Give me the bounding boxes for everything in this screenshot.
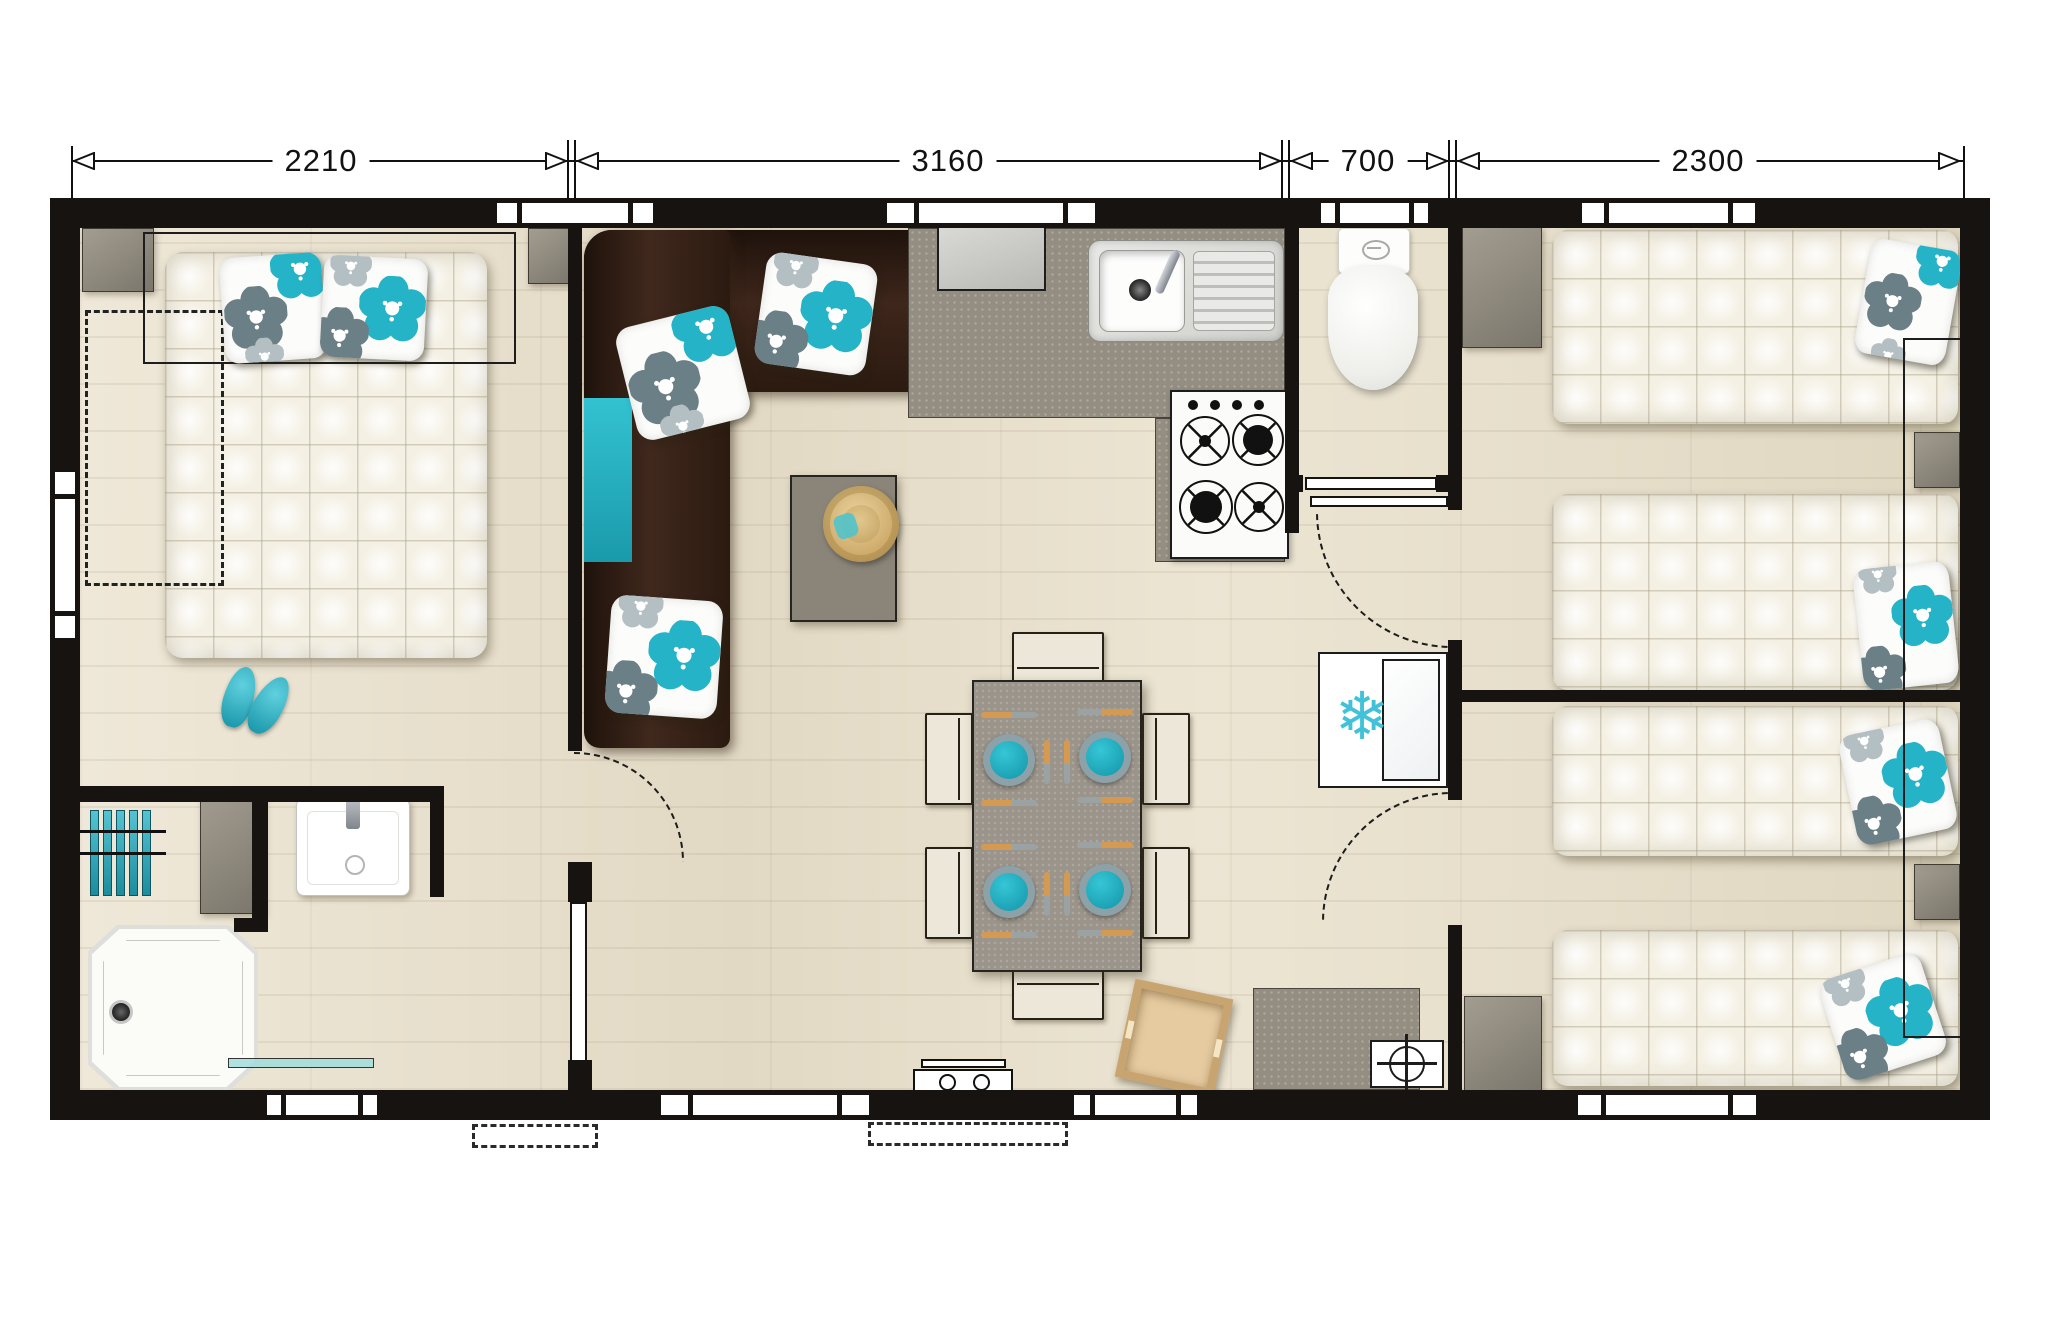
crosshair-line bbox=[1405, 1034, 1408, 1094]
shower-glass-screen bbox=[228, 1058, 374, 1068]
step-roller bbox=[973, 1074, 990, 1091]
hall-wardrobe bbox=[1462, 226, 1542, 348]
sofa-teal-cushion bbox=[584, 398, 632, 562]
dimension-tick bbox=[1963, 146, 1965, 204]
wall bbox=[568, 1060, 592, 1090]
cutlery-icon bbox=[1077, 797, 1133, 803]
gas-burner-icon bbox=[1170, 406, 1241, 477]
window bbox=[53, 470, 77, 640]
window bbox=[1576, 1093, 1758, 1117]
dining-chair bbox=[925, 847, 973, 939]
gas-burner-icon bbox=[1224, 472, 1295, 543]
window bbox=[265, 1093, 379, 1117]
cutting-board bbox=[937, 225, 1046, 291]
pillow bbox=[218, 252, 327, 365]
cutlery-icon bbox=[1077, 930, 1133, 936]
dimension-tick bbox=[567, 140, 569, 206]
overhead-shelf-line bbox=[1903, 338, 1960, 1038]
window bbox=[1319, 201, 1430, 225]
cutlery-icon bbox=[981, 844, 1037, 850]
wall bbox=[252, 800, 268, 918]
crate-handle bbox=[1213, 1039, 1223, 1058]
plate bbox=[1079, 864, 1131, 916]
dimension-tick bbox=[1281, 140, 1283, 206]
gas-hob-icon bbox=[1170, 390, 1289, 559]
radiator-pipe bbox=[80, 830, 166, 833]
dimension-tick bbox=[1288, 140, 1290, 206]
door-leaf bbox=[1310, 496, 1448, 507]
plate bbox=[1079, 731, 1131, 783]
step-roller bbox=[939, 1074, 956, 1091]
cutlery-icon bbox=[1044, 872, 1050, 916]
arrow-left-icon bbox=[577, 152, 599, 170]
hob-knob bbox=[1232, 400, 1242, 410]
wall bbox=[1448, 925, 1462, 1090]
cutlery-icon bbox=[1064, 740, 1070, 784]
window bbox=[495, 201, 655, 225]
gas-burner-icon bbox=[1221, 403, 1295, 477]
arrow-left-icon bbox=[1458, 152, 1480, 170]
window bbox=[659, 1093, 871, 1117]
dining-chair bbox=[1142, 713, 1190, 805]
plate bbox=[983, 866, 1035, 918]
fridge: ❄ bbox=[1318, 652, 1448, 788]
floor-plan: 2210 3160 700 2300 bbox=[0, 0, 2048, 1324]
flush-button-line bbox=[1367, 247, 1381, 249]
cutlery-icon bbox=[1064, 872, 1070, 916]
wall bbox=[1448, 228, 1462, 510]
wall bbox=[568, 862, 592, 902]
wooden-crate-icon bbox=[1115, 979, 1234, 1098]
arrow-right-icon bbox=[1259, 152, 1281, 170]
wash-basin-icon bbox=[296, 798, 410, 896]
radiator-pipe bbox=[80, 852, 166, 855]
dimension-tick bbox=[1448, 140, 1450, 206]
hob-knob bbox=[1254, 400, 1264, 410]
wall bbox=[1285, 475, 1303, 492]
cutlery-icon bbox=[1077, 842, 1133, 848]
entrance-door bbox=[1072, 1093, 1199, 1117]
flush-button bbox=[1362, 240, 1390, 260]
window bbox=[885, 201, 1097, 225]
dimension-label: 2300 bbox=[1660, 143, 1757, 179]
folding-step-bar bbox=[921, 1059, 1006, 1068]
dimension-label: 700 bbox=[1329, 143, 1408, 179]
dimension-label: 3160 bbox=[900, 143, 997, 179]
hob-knob bbox=[1210, 400, 1220, 410]
cutlery-icon bbox=[981, 712, 1037, 718]
cutlery-icon bbox=[1044, 740, 1050, 784]
arrow-right-icon bbox=[1938, 152, 1960, 170]
window bbox=[1580, 201, 1757, 225]
folding-step-icon bbox=[913, 1069, 1013, 1092]
drain-icon bbox=[112, 1003, 130, 1021]
outside-step-dashed bbox=[472, 1124, 598, 1148]
straw-hat-icon bbox=[823, 486, 899, 562]
plate bbox=[983, 734, 1035, 786]
arrow-left-icon bbox=[73, 152, 95, 170]
cutlery-icon bbox=[981, 932, 1037, 938]
dimension-tick bbox=[574, 140, 576, 206]
kitchen-sink-icon bbox=[1088, 240, 1284, 342]
bedroom-wardrobe bbox=[1464, 996, 1542, 1092]
arrow-right-icon bbox=[545, 152, 567, 170]
snowflake-icon: ❄ bbox=[1326, 680, 1398, 752]
pillow bbox=[753, 251, 879, 377]
pillow bbox=[319, 254, 428, 361]
crate-handle bbox=[1125, 1020, 1135, 1039]
sink-drainer bbox=[1193, 251, 1275, 331]
dining-chair bbox=[1012, 970, 1104, 1020]
outer-wall-left bbox=[50, 198, 80, 1120]
door-leaf bbox=[570, 902, 587, 1062]
dining-chair bbox=[1142, 847, 1190, 939]
wall bbox=[568, 228, 582, 751]
door-leaf bbox=[1305, 477, 1437, 490]
toilet-icon bbox=[1328, 266, 1418, 390]
arrow-right-icon bbox=[1426, 152, 1448, 170]
cutlery-icon bbox=[1077, 709, 1133, 715]
drain-icon bbox=[1129, 279, 1151, 301]
dining-chair bbox=[925, 713, 973, 805]
outside-step-dashed bbox=[868, 1122, 1068, 1146]
dining-table bbox=[972, 680, 1142, 972]
wall bbox=[1462, 690, 1990, 702]
dimension-tick bbox=[1455, 140, 1457, 206]
dining-chair bbox=[1012, 632, 1104, 682]
wall bbox=[430, 800, 444, 897]
wall bbox=[1448, 640, 1462, 800]
dimension-label: 2210 bbox=[273, 143, 370, 179]
cutlery-icon bbox=[981, 800, 1037, 806]
outer-wall-right bbox=[1960, 198, 1990, 1120]
hob-knob bbox=[1188, 400, 1198, 410]
drain-icon bbox=[345, 855, 365, 875]
wall bbox=[1436, 475, 1462, 492]
arrow-left-icon bbox=[1291, 152, 1313, 170]
wall bbox=[234, 918, 268, 932]
pillow bbox=[604, 594, 724, 720]
